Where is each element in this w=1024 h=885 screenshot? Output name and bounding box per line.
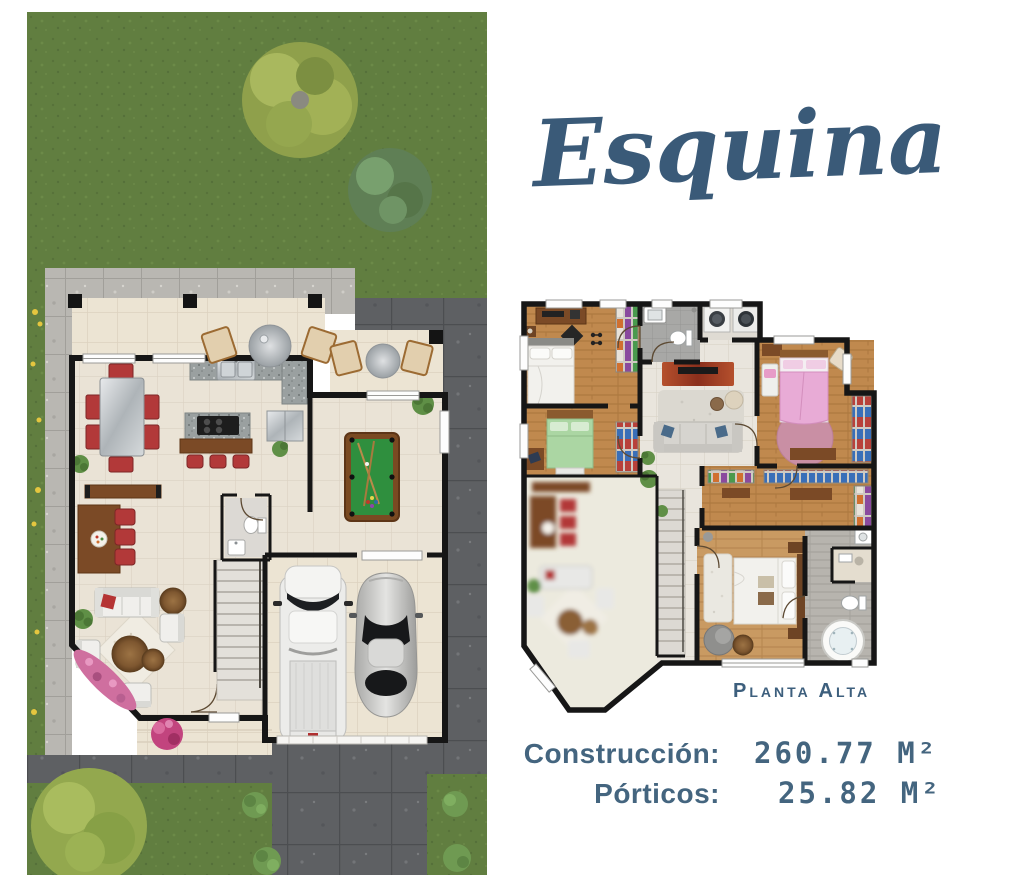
coffee-table: [112, 636, 148, 672]
pillar: [308, 294, 322, 308]
wc-nook-floor: [832, 548, 874, 582]
garage-door: [277, 736, 427, 744]
closet: [852, 396, 872, 462]
bench: [556, 468, 584, 474]
pillar: [429, 330, 443, 344]
dresser: [762, 344, 782, 356]
tree-large: [242, 42, 358, 158]
upper-floor-plan: [512, 296, 892, 714]
nightstand: [788, 628, 804, 639]
round-table: [249, 325, 291, 367]
back-yard-grass: [27, 12, 487, 268]
wc-sink: [839, 554, 852, 562]
porticos-label: Pórticos:: [505, 778, 720, 810]
plan-label: Planta Alta: [733, 680, 870, 703]
plant: [641, 451, 655, 465]
daybed: [762, 364, 778, 396]
bar-stool: [233, 455, 249, 468]
porticos-value: 25.82 M²: [778, 776, 942, 810]
coffee-table-small: [142, 649, 164, 671]
bed-cushion: [758, 592, 774, 605]
sofa: [654, 422, 742, 452]
sofa: [95, 588, 159, 617]
jacuzzi: [822, 620, 864, 662]
pouf: [725, 391, 743, 409]
side-table: [733, 635, 753, 655]
side-yard-grass-strip: [27, 268, 45, 785]
floor-lamp: [703, 532, 713, 542]
bougainvillea: [151, 718, 183, 750]
bed-single: [547, 419, 593, 468]
breakfast-bar: [180, 439, 252, 453]
toilet-tank: [859, 596, 866, 610]
headboard: [780, 350, 828, 358]
sports-car: [349, 573, 423, 717]
shower-head: [692, 308, 697, 313]
toilet-tank: [686, 330, 692, 346]
porticos-row: Pórticos: 25.82 M²: [505, 776, 975, 810]
closet-bench: [722, 488, 750, 498]
bed-double: [526, 338, 574, 404]
shrub: [443, 844, 471, 872]
page-title: Esquina: [518, 84, 962, 210]
shrub: [442, 791, 468, 817]
staircase: [217, 560, 263, 700]
stats-block: Construcción: 260.77 M² Pórticos: 25.82 …: [505, 736, 975, 816]
brochure-page: { "title": "Esquina", "plan_label": "Pla…: [0, 0, 1024, 885]
bar-stool: [210, 455, 226, 468]
ground-floor-site-plan: [27, 12, 487, 875]
bar-stool: [187, 455, 203, 468]
wc-basket: [855, 557, 864, 566]
pillar: [183, 294, 197, 308]
pool-table: [345, 433, 399, 521]
bed-king: [734, 554, 805, 628]
foot-dresser: [790, 448, 836, 460]
construction-label: Construcción:: [505, 738, 720, 770]
shrub: [242, 792, 268, 818]
plant: [272, 441, 288, 457]
plant: [640, 470, 658, 488]
porch-seating: [330, 340, 433, 378]
stone-walkway-side: [45, 310, 72, 755]
construction-row: Construcción: 260.77 M²: [505, 736, 975, 770]
tree-dark: [348, 148, 432, 232]
driveway: [272, 735, 430, 875]
tv-console: [678, 367, 718, 374]
headboard: [547, 410, 593, 419]
shag-rug: [704, 554, 732, 622]
armchair: [160, 614, 184, 642]
toilet: [670, 331, 686, 345]
pillar: [68, 294, 82, 308]
plant: [73, 609, 93, 629]
closet-bench: [790, 488, 832, 500]
bed-cushion: [758, 576, 774, 588]
bed-pink: [780, 350, 828, 424]
pickup-truck: [273, 566, 353, 741]
nightstand: [788, 542, 804, 553]
kitchen-sink: [217, 359, 255, 380]
construction-value: 260.77 M²: [754, 736, 938, 770]
toilet: [842, 596, 859, 610]
pouf-wood: [711, 398, 724, 411]
shrub: [253, 847, 281, 875]
terrace-seating: [201, 325, 337, 367]
round-table: [366, 344, 400, 378]
side-table: [160, 588, 186, 614]
